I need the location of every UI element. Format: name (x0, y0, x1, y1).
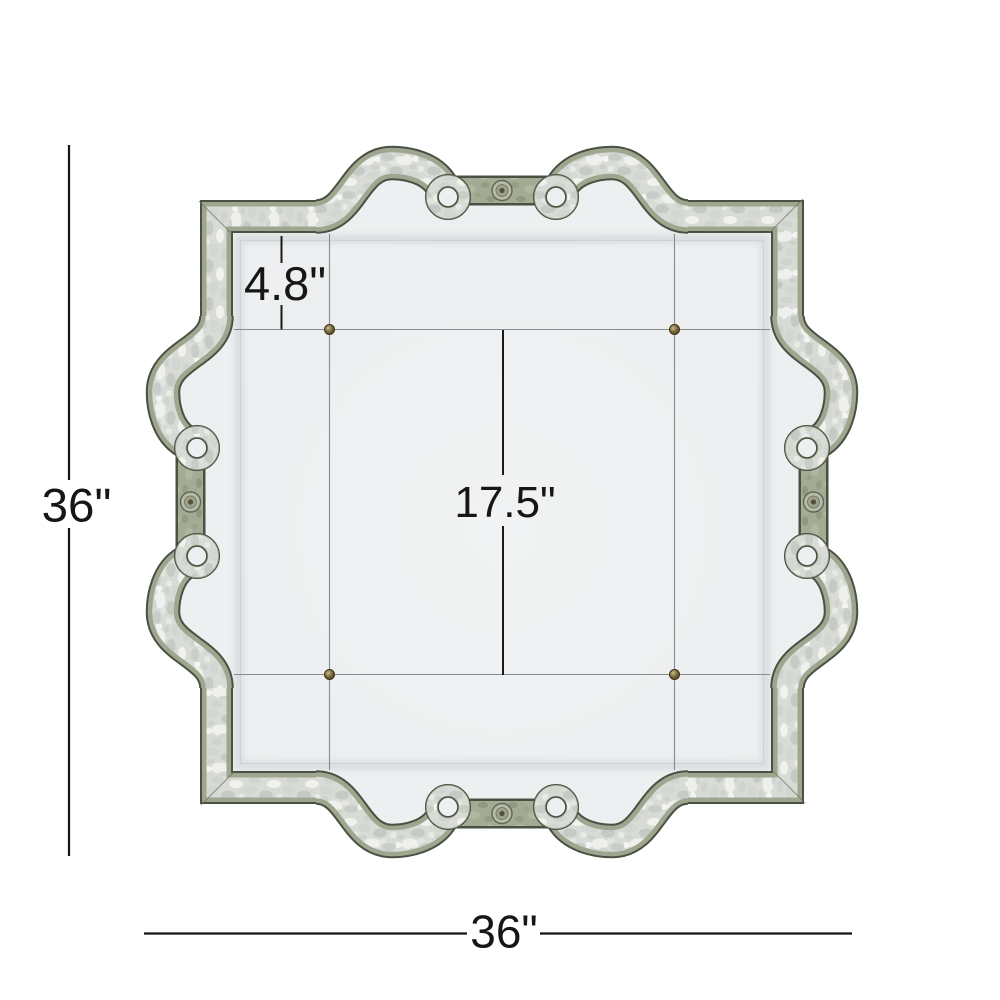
svg-text:36": 36" (470, 906, 538, 958)
svg-text:17.5": 17.5" (454, 478, 555, 527)
svg-text:4.8": 4.8" (244, 257, 326, 310)
svg-text:36": 36" (42, 480, 112, 533)
